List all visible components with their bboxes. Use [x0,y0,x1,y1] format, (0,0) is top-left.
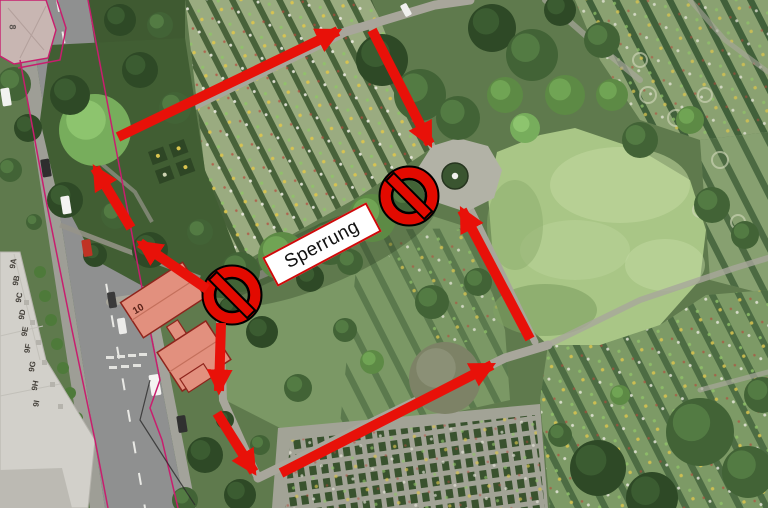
tree [104,4,136,36]
detour-arrow-south-from-chapel [219,323,221,391]
corner-building-number-label: 8 [8,24,18,29]
tree [584,22,620,58]
tree [570,440,626,496]
tree [610,385,630,405]
house-number-label: 9F [22,343,32,354]
tree [487,77,523,113]
tree [333,318,357,342]
tree [694,187,730,223]
tree [50,75,90,115]
tree [26,214,42,230]
tree [622,122,658,158]
tree [510,113,540,143]
house-number-label: 9A [8,258,19,270]
tree [14,114,42,142]
house-number-label: 9B [11,275,22,287]
tree [360,350,384,374]
tree [284,374,312,402]
tree [122,52,158,88]
tree [415,285,449,319]
aerial-photo-layer [0,0,768,508]
tree [545,75,585,115]
tree [464,268,492,296]
house-number-label: 9C [14,292,25,304]
house-number-label: 9H [30,380,41,392]
corner-building [0,0,56,64]
tree [506,29,558,81]
house-number-label: 9E [20,326,31,337]
house-number-label: 9I [31,399,41,407]
tree [250,435,270,455]
tree [731,221,759,249]
aerial-map: Sperrung 10 8 9A9B9C9D9E9F9G9H9I [0,0,768,508]
house-number-label: 9G [27,360,38,372]
house-number-label: 9D [17,309,28,321]
tree [596,79,628,111]
tree [187,437,223,473]
no-entry-sign-east [380,167,438,225]
tree [187,219,213,245]
tree [666,398,734,466]
tree [548,423,572,447]
tree [147,12,173,38]
no-entry-sign-west [203,266,261,324]
tree [436,96,480,140]
tree [676,106,704,134]
tree [246,316,278,348]
